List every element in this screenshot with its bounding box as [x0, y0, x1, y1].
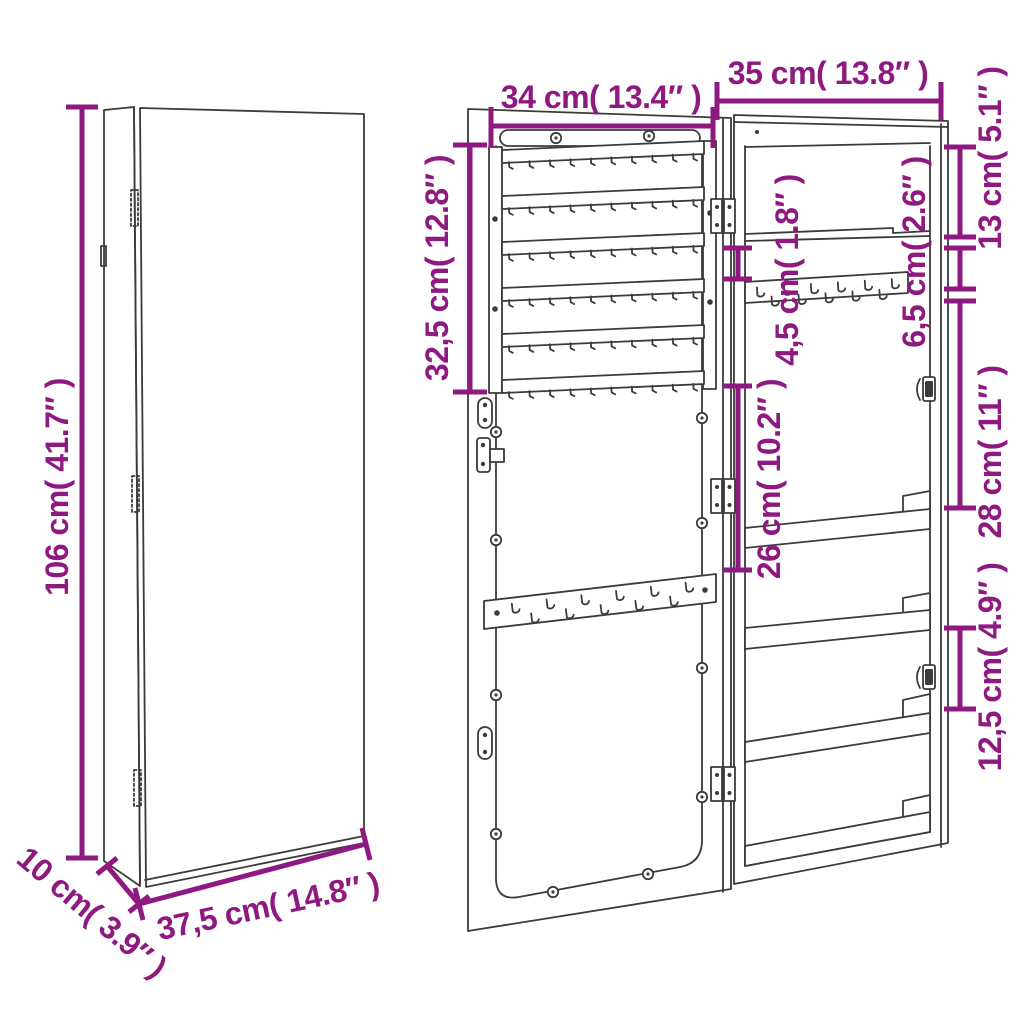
door-lower-section-label: 26 cm( 10.2″ ): [751, 379, 787, 579]
shelf-to-hooks-gap-label: 4,5 cm( 1.8″ ): [769, 174, 805, 366]
cabinet-mirror-front: [140, 108, 364, 887]
jewelry-cabinet-dimension-drawing: 106 cm( 41.7″ ) 10 cm( 3.9″ ) 37,5 cm( 1…: [0, 0, 1024, 1024]
bottom-shelf-gap-dimension: 12,5 cm( 4.9″ ): [944, 563, 1008, 772]
top-compartment-dimension: 13 cm( 5.1″ ): [944, 66, 1008, 249]
earring-rack-height-label: 32,5 cm( 12.8″ ): [419, 155, 455, 381]
height-dimension: 106 cm( 41.7″ ): [39, 107, 98, 858]
height-dimension-label: 106 cm( 41.7″ ): [39, 378, 75, 596]
shelf-section-label: 28 cm( 11″ ): [972, 366, 1008, 539]
top-compartment-label: 13 cm( 5.1″ ): [972, 66, 1008, 249]
door-outline: [468, 109, 731, 931]
door-magnet-plate-lower: [478, 727, 492, 759]
hook-rail-height-label: 6,5 cm( 2.6″ ): [896, 156, 932, 348]
open-door-panel: [468, 109, 731, 931]
cabinet-width-dimension: 35 cm( 13.8″ ): [717, 55, 941, 120]
bottom-shelf-gap-label: 12,5 cm( 4.9″ ): [972, 563, 1008, 772]
cabinet-width-label: 35 cm( 13.8″ ): [728, 55, 928, 91]
door-magnet-plate-upper: [478, 398, 492, 428]
shelf-section-dimension: 28 cm( 11″ ): [944, 301, 1008, 538]
door-inner-width-label: 34 cm( 13.4″ ): [501, 79, 701, 115]
closed-cabinet-view: [101, 107, 364, 887]
product-dimension-diagram: 106 cm( 41.7″ ) 10 cm( 3.9″ ) 37,5 cm( 1…: [0, 0, 1024, 1024]
